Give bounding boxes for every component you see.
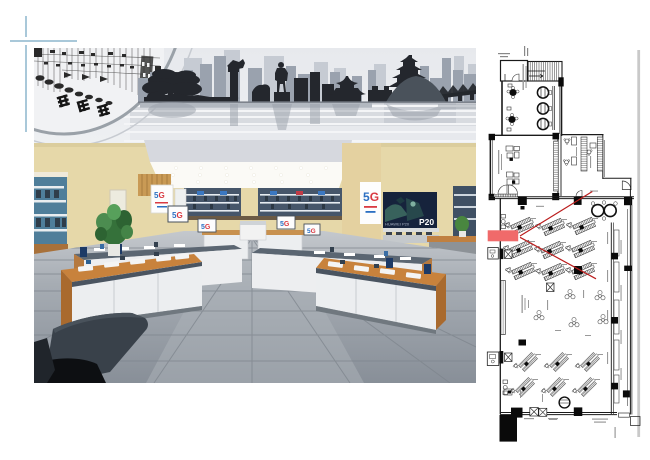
svg-text:5G: 5G [172, 211, 183, 220]
svg-text:5G: 5G [201, 224, 211, 231]
svg-text:HUAWEI P20: HUAWEI P20 [385, 222, 410, 227]
svg-text:5G: 5G [307, 228, 316, 235]
svg-text:5G: 5G [363, 190, 379, 204]
svg-text:P20: P20 [419, 217, 434, 227]
svg-text:5G: 5G [154, 191, 165, 200]
svg-text:5G: 5G [280, 221, 290, 228]
